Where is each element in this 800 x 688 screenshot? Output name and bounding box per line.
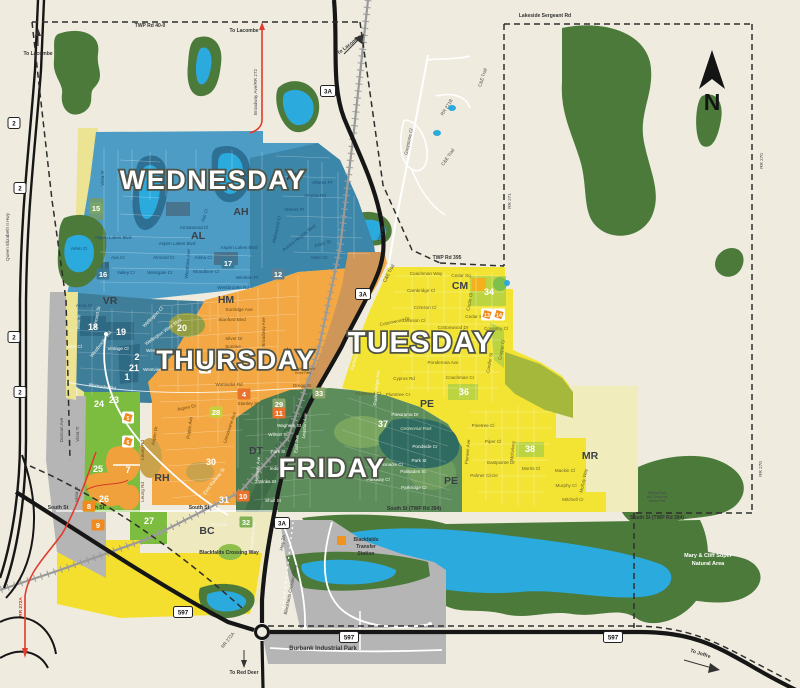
map-label: Athens Pl: [284, 207, 304, 212]
zone-number-marker: 11: [273, 408, 286, 419]
svg-text:12: 12: [274, 270, 282, 279]
svg-text:597: 597: [608, 635, 619, 642]
map-label: Ponderosa Ave: [427, 360, 459, 365]
map-label: South St: [189, 505, 210, 511]
svg-text:2: 2: [12, 335, 16, 342]
svg-text:33: 33: [315, 389, 323, 398]
map-label: To Red Deer: [229, 670, 258, 676]
svg-text:3A: 3A: [324, 89, 332, 96]
map-label: Leung Rd: [140, 482, 145, 502]
map-label: Palmer Circle: [470, 473, 498, 478]
zone-number-marker: 32: [240, 517, 253, 528]
zone-number-marker: 7: [125, 465, 130, 475]
map-label: Almond Cr: [153, 255, 175, 260]
area-code-pe: PE: [444, 475, 458, 487]
zone-number-marker: 4: [238, 389, 251, 400]
zone-number-marker: 31: [219, 495, 229, 505]
map-label: Woodbine Cl: [193, 269, 219, 274]
map-label: Aspen Lakes Blvd: [221, 245, 258, 250]
svg-text:36: 36: [459, 387, 469, 397]
map-label: Coachman Cr: [446, 375, 475, 380]
area-code-ah: AH: [233, 206, 248, 218]
zone-number-marker: 9: [92, 520, 105, 531]
compass-north-label: N: [704, 89, 721, 115]
map-label: Vista Cl: [66, 344, 82, 349]
zone-number-marker: 17: [222, 258, 235, 269]
svg-text:2: 2: [18, 186, 22, 193]
map-label: Queen Elizabeth II Hwy: [5, 212, 10, 261]
svg-text:18: 18: [88, 322, 98, 332]
map-label: Broadway Ave/RR 272: [253, 68, 258, 115]
zone-number-marker: 21: [129, 363, 139, 373]
map-label: Mary & Cliff Soper: [684, 553, 733, 559]
map-canvas: N Vista TrAnna ClAspen Lakes BlvdAspen L…: [0, 0, 800, 688]
map-label: Westbrooke Rd: [217, 285, 249, 290]
svg-text:34: 34: [484, 287, 494, 297]
area-code-mr: MR: [582, 450, 599, 462]
svg-text:25: 25: [93, 464, 103, 474]
map-label: South St: [48, 505, 69, 511]
map-label: Silver Dr: [225, 336, 243, 341]
map-label: Cedar Sq: [451, 273, 471, 278]
map-label: Pinewood Cl: [355, 391, 381, 396]
svg-text:26: 26: [99, 494, 109, 504]
zone-number-marker: 10: [237, 491, 250, 502]
map-label: Winks St: [258, 479, 277, 484]
collection-schedule-map: N Vista TrAnna ClAspen Lakes BlvdAspen L…: [0, 0, 800, 688]
zone-number-marker: 30: [206, 457, 216, 467]
map-label: Womacks Rd: [215, 382, 243, 387]
zone-number-marker: 34: [484, 287, 494, 297]
map-label: Cyprus Rd: [393, 376, 415, 381]
svg-text:2: 2: [18, 390, 22, 397]
map-label: TWP Rd 395: [433, 255, 462, 261]
svg-text:19: 19: [116, 327, 126, 337]
highway-shield-3a: 3A: [275, 518, 290, 529]
map-label: Sunridge Ave: [225, 307, 253, 312]
map-label: Coachman Way: [410, 271, 443, 276]
map-label: Athens Pl: [312, 180, 332, 185]
map-label: Murphy Cl: [556, 483, 577, 488]
map-label: Shull St: [265, 498, 282, 503]
svg-text:17: 17: [224, 259, 232, 268]
map-label: Winston Pl: [236, 275, 258, 280]
map-label: Transfer: [356, 544, 376, 550]
svg-text:5: 5: [127, 416, 130, 422]
zone-number-marker: 20: [177, 323, 187, 333]
highway-shield-2: 2: [8, 332, 20, 343]
highway-shield-3a: 3A: [321, 86, 336, 97]
map-label: Mackin Cl: [555, 468, 575, 473]
highway-shield-2: 2: [14, 387, 26, 398]
map-label: RR 270: [759, 153, 764, 169]
roundabout: [256, 626, 269, 639]
zone-number-marker: 27: [144, 516, 154, 526]
map-label: Stanley St: [238, 401, 260, 406]
zone-number-marker: 14: [493, 309, 505, 321]
day-zone-label-thursday: THURSDAY: [156, 345, 316, 375]
svg-text:2: 2: [12, 121, 16, 128]
transfer-station-icon: [337, 536, 346, 545]
area-code-dt: DT: [249, 445, 264, 457]
map-label: Vista Tr: [100, 170, 105, 186]
map-label: Aztec Cr: [310, 255, 328, 260]
highway-shield-597: 597: [174, 607, 193, 618]
map-label: Broadway Ave: [261, 317, 266, 347]
map-label: Gregg St: [293, 383, 312, 388]
map-label: Jubilee Park: [648, 499, 666, 503]
map-label: TWP Rd 40-0: [135, 23, 166, 29]
zone-mr-bright2: [576, 492, 606, 512]
svg-text:9: 9: [96, 521, 100, 530]
map-label: Morris Cl: [522, 466, 540, 471]
map-label: RR 272A: [18, 597, 24, 617]
map-label: Aspen Lakes Blvd: [95, 235, 132, 240]
zone-number-marker: 19: [116, 327, 126, 337]
zone-number-marker: 23: [109, 395, 119, 405]
map-label: Parkridge Cr: [401, 485, 427, 490]
map-label: South St (TWP Rd 394): [630, 515, 684, 521]
svg-text:7: 7: [125, 465, 130, 475]
svg-text:13: 13: [484, 313, 490, 319]
zone-number-marker: 25: [93, 464, 103, 474]
map-label: To Lacombe: [229, 28, 258, 34]
svg-text:3A: 3A: [278, 521, 286, 528]
zone-number-marker: 2: [134, 352, 139, 362]
svg-text:14: 14: [496, 313, 502, 319]
map-label: Ava Cr: [111, 255, 125, 260]
svg-text:21: 21: [129, 363, 139, 373]
zone-number-marker: 18: [88, 322, 98, 332]
map-label: Crimson Cl: [414, 305, 437, 310]
map-label: Cambridge Cl: [407, 288, 435, 293]
map-label: Pinetree Cl: [472, 423, 495, 428]
day-zone-label-friday: FRIDAY: [278, 453, 385, 483]
map-label: Athena Rd: [304, 193, 326, 198]
svg-text:30: 30: [206, 457, 216, 467]
map-label: Burbank Industrial Park: [289, 646, 357, 652]
map-label: Waghorn St: [277, 423, 302, 428]
svg-text:3A: 3A: [359, 292, 367, 299]
map-label: Duncan Ave: [59, 417, 64, 442]
zone-number-marker: 8: [83, 501, 96, 512]
zone-number-marker: 13: [481, 309, 493, 321]
day-zone-label-wednesday: WEDNESDAY: [120, 165, 307, 195]
map-label: South St (TWP Rd 394): [387, 506, 441, 512]
zone-number-marker: 16: [97, 269, 110, 280]
zone-number-marker: 12: [272, 269, 285, 280]
map-label: Blackfalds: [353, 537, 378, 543]
svg-text:2: 2: [134, 352, 139, 362]
map-label: Plumtree Cr: [386, 392, 411, 397]
zone-number-marker: 5: [122, 412, 134, 424]
area-code-vr: VR: [103, 295, 118, 307]
zone-number-marker: 6: [122, 436, 134, 448]
map-label: Adina Cl: [194, 255, 211, 260]
map-label: Valley Cr: [117, 270, 136, 275]
highway-shield-597: 597: [604, 632, 623, 643]
svg-text:6: 6: [127, 440, 130, 446]
svg-text:8: 8: [87, 502, 91, 511]
map-label: Vista Tr: [75, 426, 80, 442]
zone-number-marker: 38: [525, 444, 535, 454]
map-label: Anna Cl: [76, 303, 92, 308]
svg-text:15: 15: [92, 204, 100, 213]
svg-text:10: 10: [239, 492, 247, 501]
zone-number-marker: 26: [99, 494, 109, 504]
day-zone-label-tuesday: TUESDAY: [348, 327, 494, 359]
svg-text:597: 597: [344, 635, 355, 642]
map-label: Station: [358, 551, 375, 557]
map-label: Arlen Cl: [71, 246, 87, 251]
map-label: Vista Tr: [74, 486, 79, 502]
map-label: Wilson St: [268, 432, 288, 437]
map-label: Centennial Park: [400, 426, 432, 431]
svg-text:28: 28: [212, 408, 220, 417]
map-label: To Lacombe: [23, 51, 52, 57]
svg-text:597: 597: [178, 610, 189, 617]
svg-text:11: 11: [275, 409, 283, 418]
zone-number-marker: 33: [313, 388, 326, 399]
highway-shield-3a: 3A: [356, 289, 371, 300]
svg-text:20: 20: [177, 323, 187, 333]
zone-number-marker: 37: [378, 419, 388, 429]
area-code-bc: BC: [199, 525, 215, 537]
highway-shield-2: 2: [8, 118, 20, 129]
svg-text:23: 23: [109, 395, 119, 405]
zone-number-marker: 15: [90, 203, 103, 214]
area-code-al: AL: [191, 230, 206, 242]
area-code-pe: PE: [420, 398, 434, 410]
map-label: Palisades St: [400, 469, 426, 474]
map-label: Vintage Cl: [107, 346, 128, 351]
map-label: Pondside Cr: [412, 444, 438, 449]
svg-text:27: 27: [144, 516, 154, 526]
map-label: Lakeside Sergeant Rd: [519, 13, 571, 19]
map-label: Mitchell Cr: [562, 497, 584, 502]
zone-number-marker: 36: [459, 387, 469, 397]
area-code-rh: RH: [154, 472, 169, 484]
svg-text:31: 31: [219, 495, 229, 505]
svg-text:32: 32: [242, 518, 250, 527]
area-code-cm: CM: [452, 280, 469, 292]
map-label: RR 271: [507, 193, 512, 209]
area-code-hm: HM: [218, 294, 235, 306]
map-label: RR 270: [758, 461, 763, 477]
map-label: Park St: [411, 458, 427, 463]
svg-text:38: 38: [525, 444, 535, 454]
zone-number-marker: 1: [124, 372, 129, 382]
highway-shield-597: 597: [340, 632, 359, 643]
highway-shield-2: 2: [14, 183, 26, 194]
svg-text:1: 1: [124, 372, 129, 382]
svg-text:37: 37: [378, 419, 388, 429]
map-label: Stanford Blvd: [218, 317, 246, 322]
map-label: Panorama Dr: [391, 412, 419, 417]
zone-number-marker: 24: [94, 399, 104, 409]
map-label: Natural Area: [692, 561, 725, 567]
svg-text:16: 16: [99, 270, 107, 279]
zone-number-marker: 28: [210, 407, 223, 418]
map-label: Blackfalds Crossing Way: [199, 550, 259, 556]
map-label: Westgate Cr: [147, 270, 173, 275]
svg-text:24: 24: [94, 399, 104, 409]
map-label: Piper Cl: [485, 439, 501, 444]
map-label: Leung Rd: [140, 440, 145, 460]
